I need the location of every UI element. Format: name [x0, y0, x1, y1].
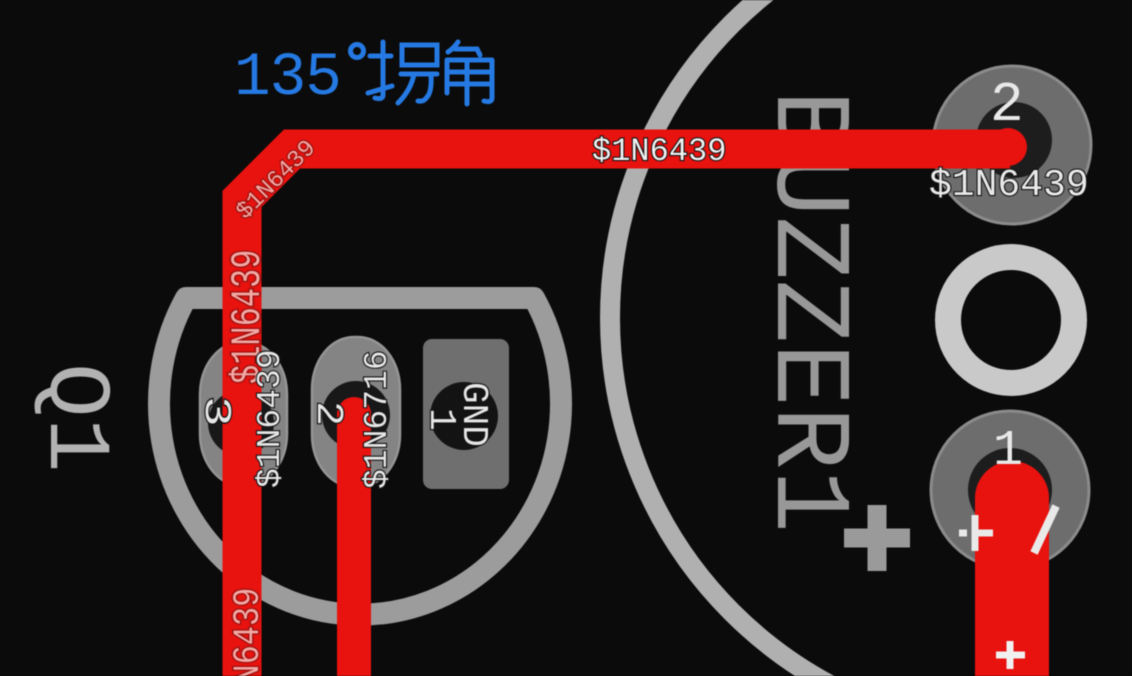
- svg-text:2: 2: [990, 73, 1024, 137]
- svg-text:GND: GND: [453, 382, 494, 447]
- svg-text:$1N6439: $1N6439: [929, 164, 1089, 207]
- svg-text:135: 135: [234, 44, 341, 113]
- svg-text:Q1: Q1: [25, 363, 125, 473]
- svg-text:3: 3: [194, 396, 238, 427]
- svg-text:2: 2: [307, 401, 350, 426]
- svg-text:1: 1: [993, 423, 1023, 480]
- svg-text:$1N6439: $1N6439: [228, 588, 270, 676]
- svg-text:$1N6439: $1N6439: [592, 133, 726, 170]
- svg-text:$1N6716: $1N6716: [359, 350, 396, 489]
- svg-text:$1N6439: $1N6439: [252, 349, 289, 488]
